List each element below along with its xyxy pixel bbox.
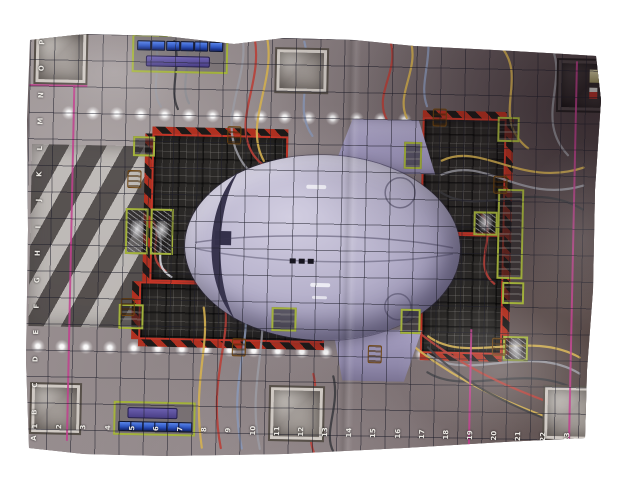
equipment-box [473,211,497,235]
col-number: 23 [561,431,573,443]
console-screen [137,40,151,50]
col-number: 16 [392,428,404,440]
control-console [132,34,229,74]
row-letter: K [33,168,45,180]
col-number: 7 [174,423,186,435]
col-number: 4 [102,422,114,434]
col-number: 20 [488,430,500,442]
equipment-box [271,307,296,332]
row-letter: G [31,274,43,286]
col-number: 11 [271,425,283,437]
row-letter: M [34,115,46,127]
pad-clamp [433,108,447,126]
row-letter: E [30,326,42,338]
equipment-box [404,142,423,169]
col-number: 3 [77,421,89,433]
col-number: 17 [416,428,428,440]
equipment-box [502,282,524,304]
hatch-label-sticker [590,70,600,83]
col-number: 9 [222,424,234,436]
col-number: 2 [53,421,65,433]
row-letter: P [36,36,48,48]
col-number: 12 [295,426,307,438]
equipment-box [503,336,529,362]
row-letter: F [31,300,43,312]
row-letter: A [28,432,40,444]
col-number: 14 [343,427,355,439]
col-number: 21 [512,430,524,442]
equipment-box [400,309,421,334]
console-screen [166,41,180,51]
row-letter: D [29,353,41,365]
col-number: 24 [585,432,597,444]
row-letter: H [32,247,44,259]
console-body [146,55,210,67]
pad-clamp [492,338,506,356]
row-letter: C [29,379,41,391]
row-letter: O [36,62,48,74]
console-body [127,407,177,419]
photo-scene: PONMLKJIHGFEDCBA 12345678910111213141516… [0,0,640,480]
equipment-box [496,189,524,280]
row-letter: N [35,89,47,101]
pad-clamp [121,298,135,316]
equipment-box [125,208,149,254]
hatch-warning-sticker [589,88,597,99]
row-letter: J [33,194,45,206]
col-number: 8 [198,424,210,436]
equipment-box [150,209,174,255]
col-number: 22 [537,431,549,443]
col-number: 6 [150,423,162,435]
pad-clamp [232,338,246,356]
console-screen [180,41,194,51]
game-mat: PONMLKJIHGFEDCBA 12345678910111213141516… [24,30,602,456]
row-letter: L [34,142,46,154]
pad-clamp [227,126,241,144]
console-screen [194,41,208,51]
console-screen [151,40,165,50]
col-number: 19 [464,429,476,441]
pad-clamp [493,176,507,194]
equipment-box [497,117,520,142]
floor-hatch-3 [558,60,609,111]
console-screen [209,42,223,52]
pad-clamp [127,170,141,188]
pad-clamp [368,345,382,363]
hazard-stripe-edge [152,127,288,137]
col-number: 5 [126,422,138,434]
col-number: 18 [440,429,452,441]
col-number: 15 [367,427,379,439]
row-letter: B [28,406,40,418]
row-letter: I [32,221,44,233]
col-number: 13 [319,426,331,438]
floor-hatch-2 [276,49,327,92]
col-number: 10 [247,425,259,437]
col-number: 1 [29,420,41,432]
mat-surface: PONMLKJIHGFEDCBA 12345678910111213141516… [22,28,613,468]
equipment-box [133,136,155,156]
